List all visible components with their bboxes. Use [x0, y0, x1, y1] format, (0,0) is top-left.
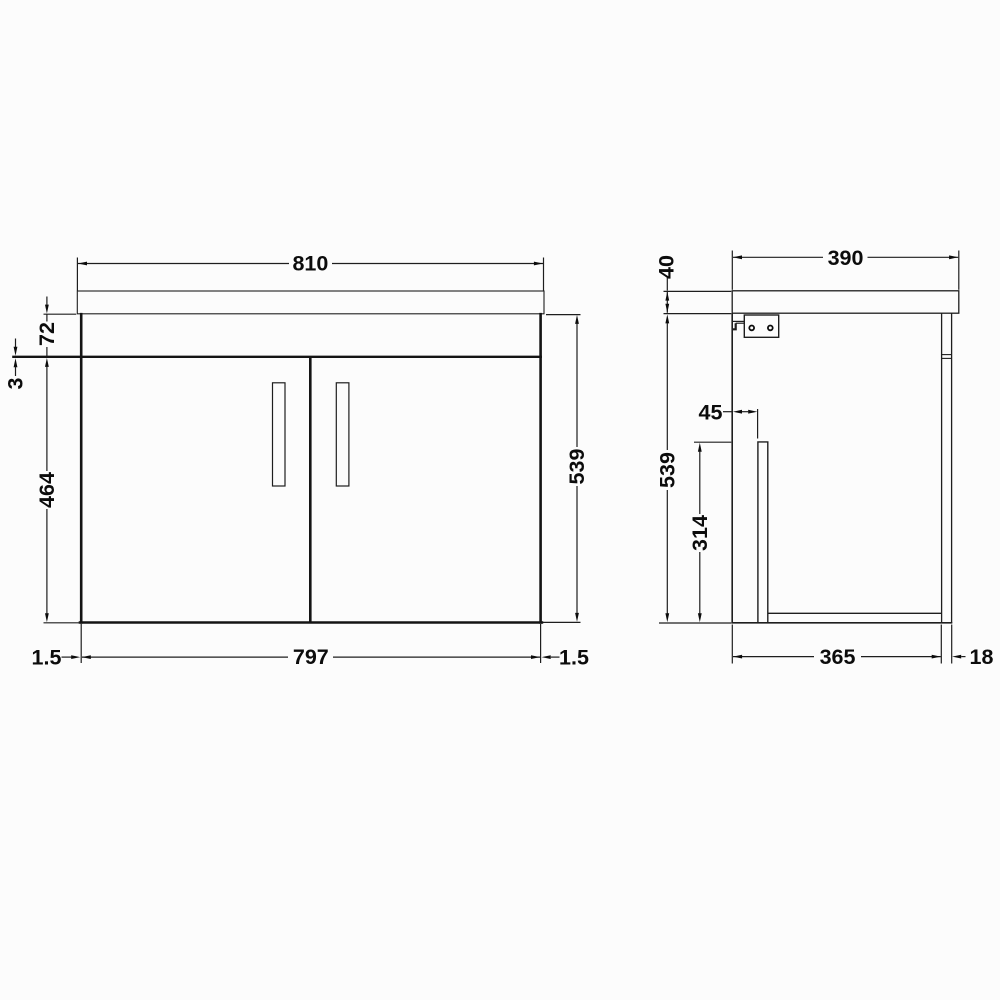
svg-text:464: 464: [35, 472, 59, 508]
svg-text:18: 18: [970, 645, 994, 669]
svg-text:1.5: 1.5: [559, 645, 589, 669]
svg-text:390: 390: [828, 246, 864, 270]
svg-text:3: 3: [4, 377, 28, 389]
svg-text:539: 539: [655, 452, 679, 488]
svg-text:797: 797: [293, 645, 329, 669]
svg-text:365: 365: [820, 645, 856, 669]
svg-text:539: 539: [565, 449, 589, 485]
svg-text:1.5: 1.5: [32, 645, 62, 669]
svg-text:810: 810: [292, 252, 328, 276]
svg-text:314: 314: [688, 515, 712, 551]
svg-text:40: 40: [655, 255, 679, 279]
svg-text:72: 72: [35, 322, 59, 346]
svg-text:45: 45: [699, 400, 723, 424]
